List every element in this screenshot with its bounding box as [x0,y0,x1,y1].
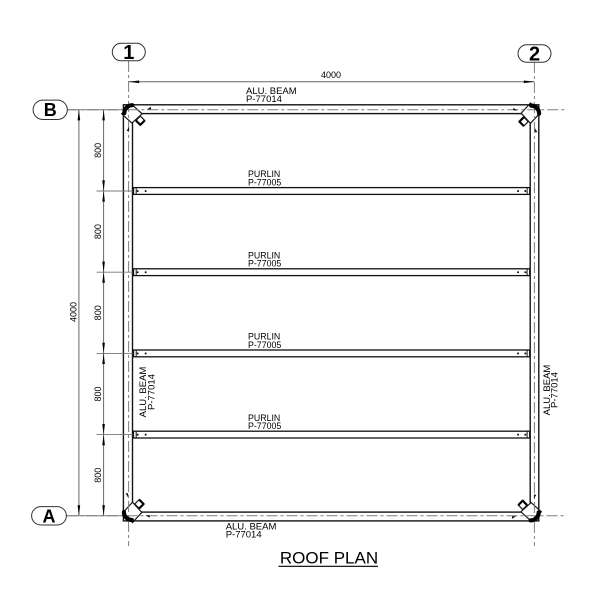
svg-text:P-77014: P-77014 [246,94,282,105]
svg-text:800: 800 [93,224,103,239]
svg-text:P-77014: P-77014 [146,374,157,410]
svg-text:4000: 4000 [69,302,79,322]
svg-text:4000: 4000 [321,70,341,80]
svg-text:800: 800 [93,468,103,483]
svg-text:P-77014: P-77014 [226,529,262,540]
svg-text:P-77005: P-77005 [248,178,281,188]
svg-text:B: B [44,100,57,120]
svg-text:ROOF PLAN: ROOF PLAN [280,548,378,567]
svg-text:800: 800 [93,305,103,320]
svg-text:1: 1 [123,42,134,64]
svg-text:P-77014: P-77014 [550,372,561,408]
svg-text:800: 800 [93,386,103,401]
svg-text:2: 2 [529,44,540,66]
svg-text:P-77005: P-77005 [248,259,281,269]
svg-text:P-77005: P-77005 [248,340,281,350]
svg-text:A: A [43,506,56,526]
svg-text:800: 800 [93,143,103,158]
svg-text:P-77005: P-77005 [248,421,281,431]
